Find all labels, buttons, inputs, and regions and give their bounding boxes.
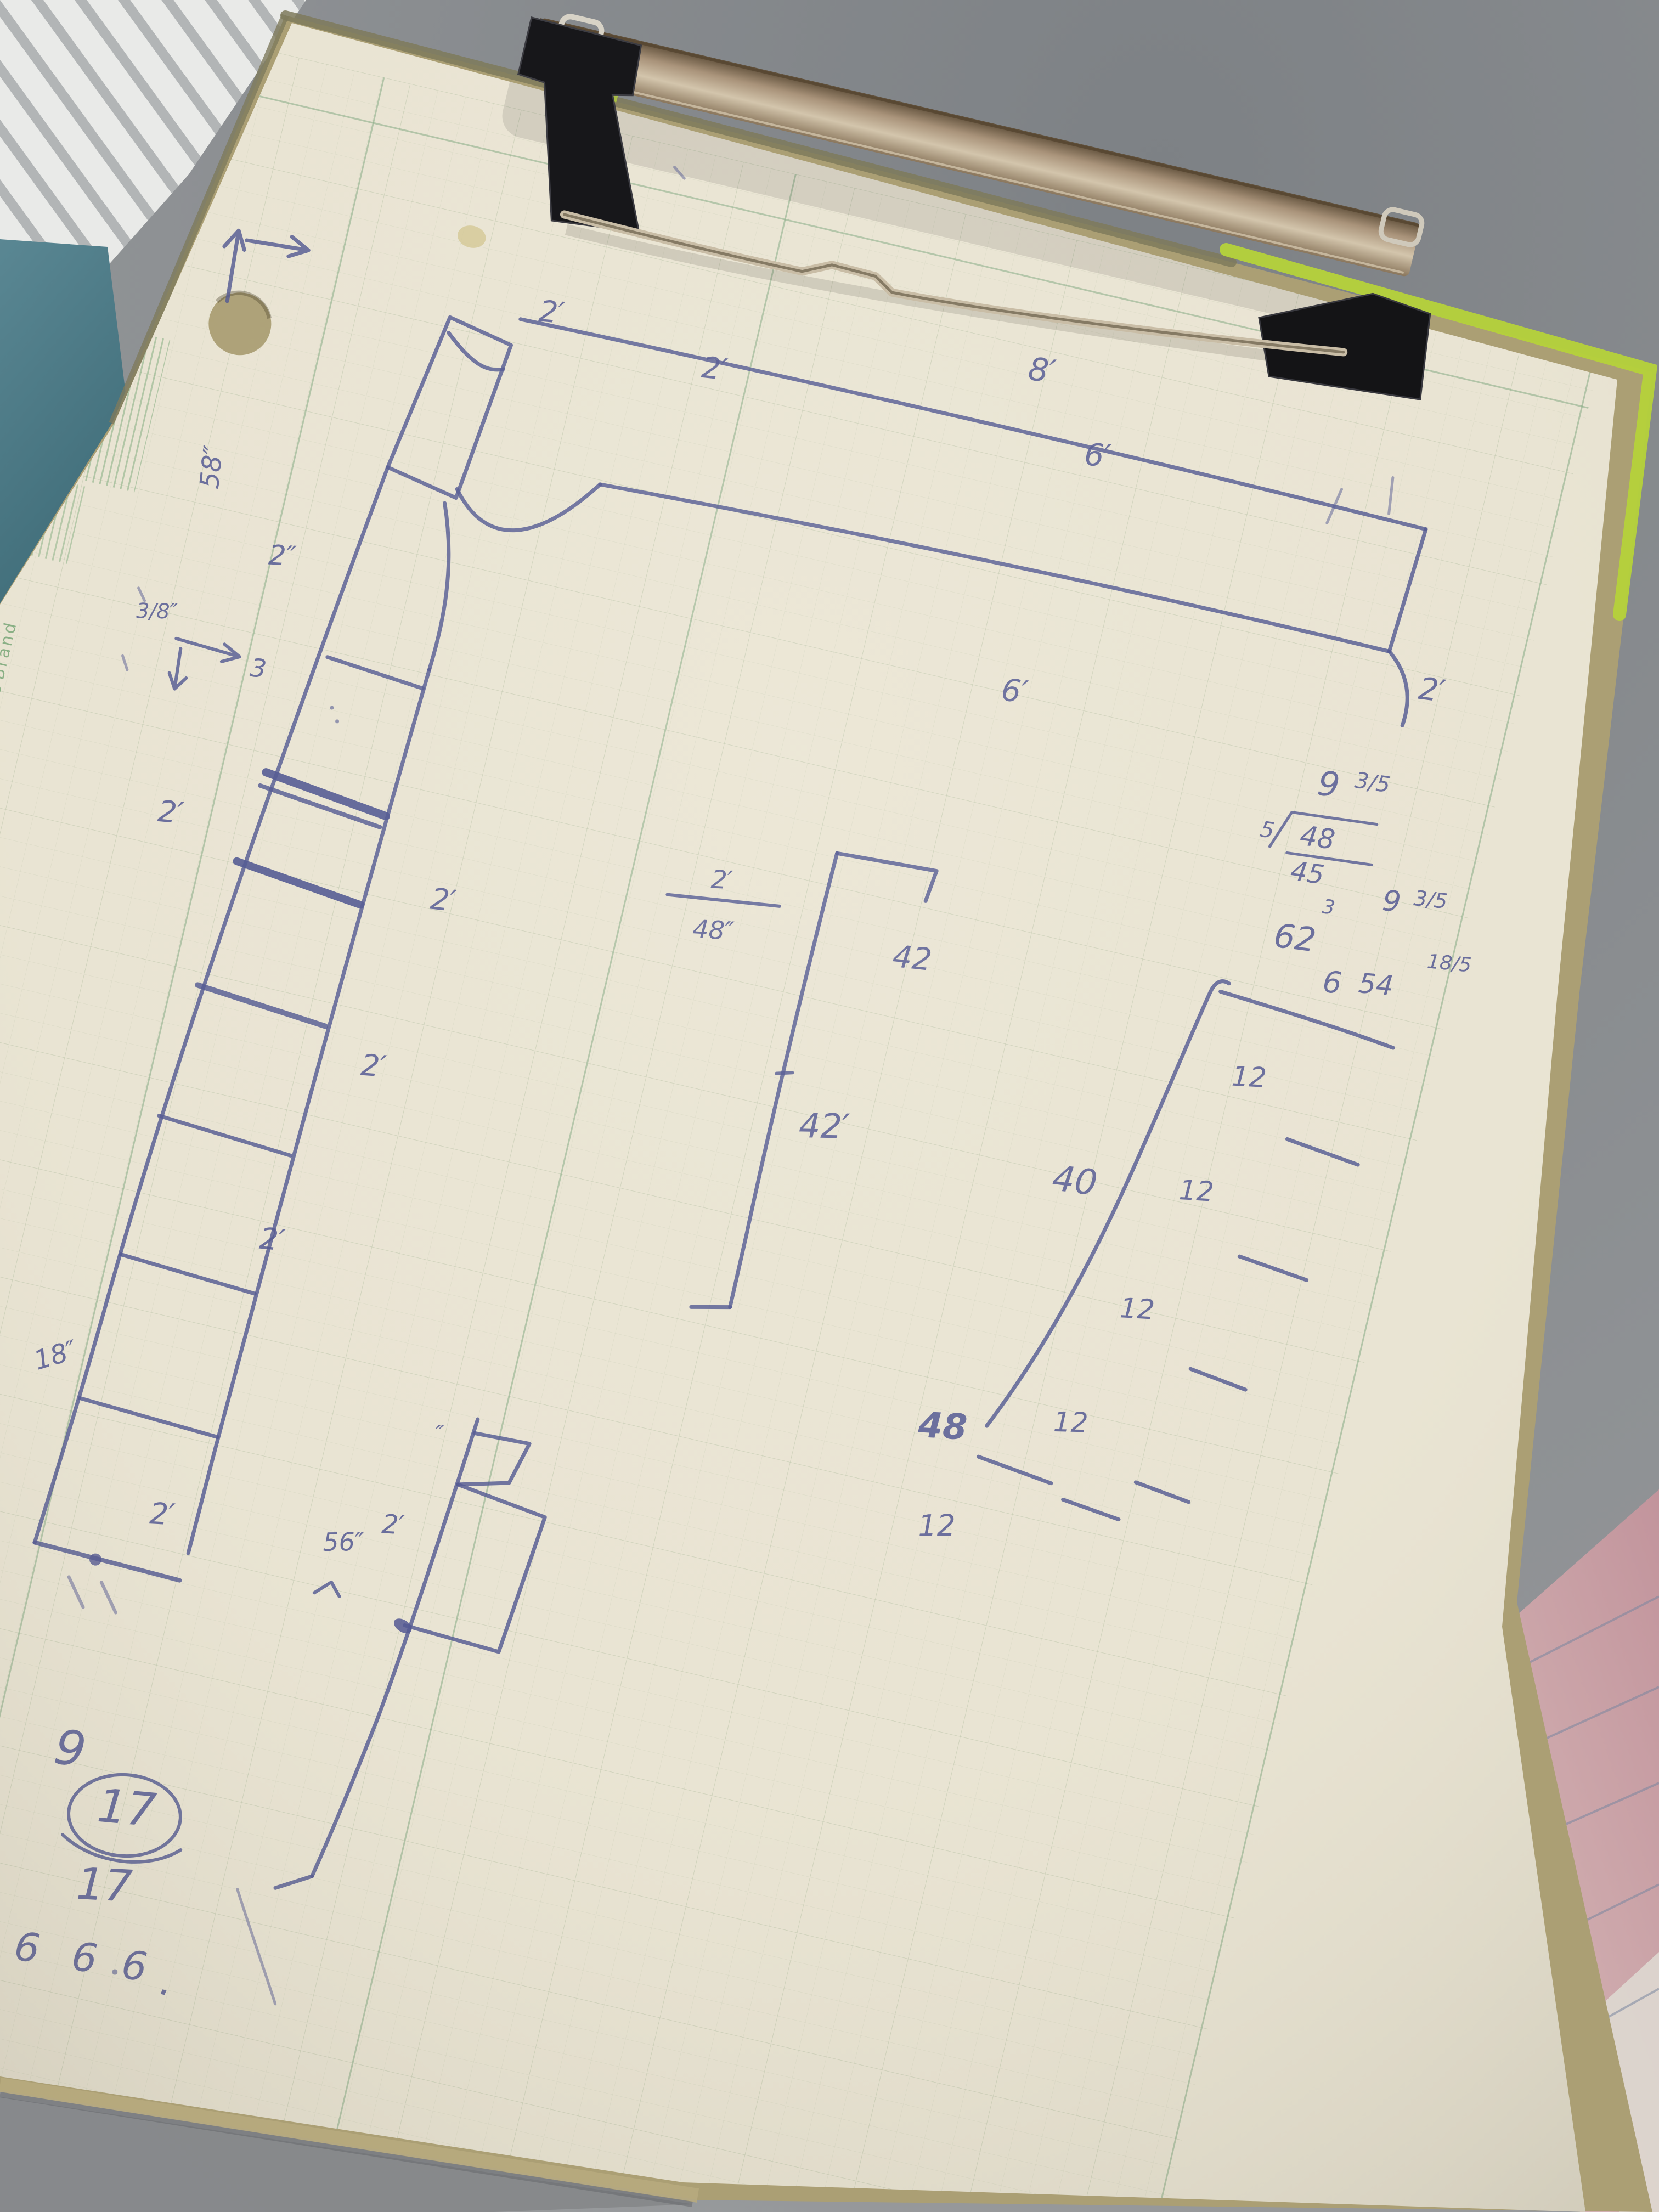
photo-of-clipboard-sketch: National®Brand: [0, 0, 1659, 2212]
